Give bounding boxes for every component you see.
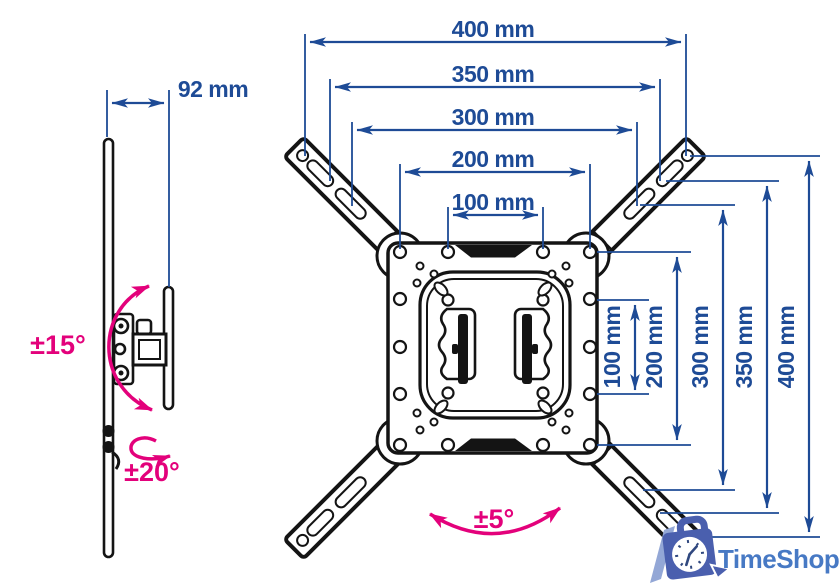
rotation-label: ±5°: [474, 504, 515, 534]
dim-h-400-label: 400 mm: [452, 16, 535, 42]
timeshop-logo: TimeShop: [650, 516, 839, 584]
side-view: [103, 139, 174, 557]
dim-h-300-label: 300 mm: [452, 104, 535, 130]
dim-v-400-label: 400 mm: [773, 306, 799, 389]
tv-rail-left: [439, 309, 475, 384]
tilt-label: ±15°: [30, 330, 86, 360]
tilt-bracket: [114, 314, 166, 384]
tv-rail-right: [515, 309, 551, 384]
dim-v-200-label: 200 mm: [641, 306, 667, 389]
diagram-canvas: 400 mm 350 mm 300 mm 200 mm 100 mm 100 m…: [0, 0, 840, 585]
dim-v-300-label: 300 mm: [687, 306, 713, 389]
dim-v-100-label: 100 mm: [599, 306, 625, 389]
dim-v-350-label: 350 mm: [731, 306, 757, 389]
logo-wordmark: TimeShop: [718, 544, 839, 574]
dim-h-350-label: 350 mm: [452, 61, 535, 87]
dim-h-100-label: 100 mm: [452, 189, 535, 215]
dim-h-200-label: 200 mm: [452, 146, 535, 172]
swivel-arrow: [131, 438, 170, 459]
dim-depth-label: 92 mm: [178, 76, 248, 102]
swivel-label: ±20°: [124, 457, 180, 487]
